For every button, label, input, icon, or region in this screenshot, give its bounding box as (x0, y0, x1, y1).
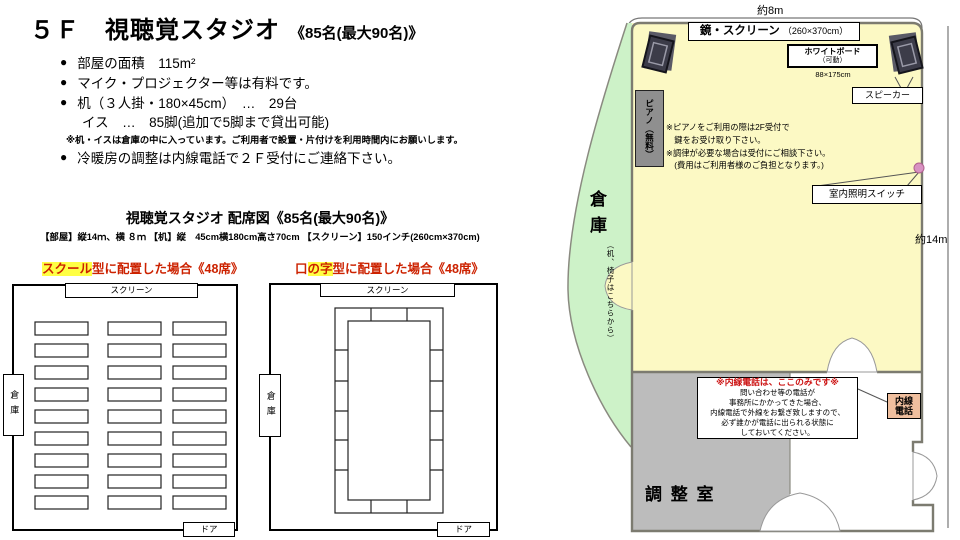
floorplan (560, 0, 960, 540)
desk (35, 388, 88, 401)
desk (35, 344, 88, 357)
whiteboard-label: ホワイトボード （可動） (787, 44, 878, 68)
square-storage-label: 倉庫 (259, 374, 281, 437)
square-layout-title-pre: 口 (295, 262, 308, 276)
bullet-room-area-text: 部屋の面積 115m² (77, 52, 195, 72)
light-switch-dot (914, 163, 924, 173)
desk (173, 454, 226, 467)
school-storage-label: 倉庫 (3, 374, 24, 436)
square-layout-title-highlight: の字 (308, 262, 333, 276)
whiteboard-size-label: 88×175cm (790, 70, 876, 79)
seating-specs: 【部屋】縦14ｍ、横 ８ｍ 【机】縦 45cm横180cm高さ70cm 【スクリ… (5, 229, 515, 243)
desk (173, 322, 226, 335)
school-door-label: ドア (183, 522, 235, 537)
desk (108, 496, 161, 509)
page-title-capacity: 《85名(最大90名)》 (290, 22, 423, 43)
bullet-equipment: マイク・プロジェクター等は有料です。 (60, 72, 318, 92)
whiteboard-name: ホワイトボード (805, 48, 861, 56)
desk (173, 344, 226, 357)
piano-notes: ※ピアノをご利用の際は2F受付で 鍵をお受け取り下さい。 ※調律が必要な場合は受… (666, 121, 830, 172)
control-room-label: 調 整 室 (645, 480, 715, 505)
seating-title: 視聴覚スタジオ 配席図《85名(最大90名)》 (60, 208, 460, 228)
desk (108, 322, 161, 335)
square-layout-diagram (258, 283, 502, 535)
whiteboard-sub: （可動） (819, 57, 847, 64)
storage-sub-label: （机、椅子はこちらから） (605, 241, 616, 343)
piano-note-line: ※調律が必要な場合は受付にご相談下さい。 (666, 147, 830, 160)
desk (173, 475, 226, 488)
square-screen-label: スクリーン (320, 283, 455, 297)
desk (35, 366, 88, 379)
table-ring-inner (348, 321, 430, 500)
school-layout-title-highlight: スクール (42, 262, 92, 276)
desk (108, 388, 161, 401)
bullet-equipment-text: マイク・プロジェクター等は有料です。 (77, 72, 318, 92)
square-door-label: ドア (437, 522, 490, 537)
desk (173, 410, 226, 423)
bullet-aircon-text: 冷暖房の調整は内線電話で２Ｆ受付にご連絡下さい。 (77, 147, 401, 167)
school-screen-label: スクリーン (65, 283, 198, 298)
page-title: ５Ｆ 視聴覚スタジオ (30, 10, 280, 45)
phone-note-line: しておいてください。 (740, 428, 814, 438)
mirror-screen-label: 鏡・スクリーン （260×370cm） (688, 22, 860, 41)
desk (173, 432, 226, 445)
desk (35, 432, 88, 445)
desk (108, 366, 161, 379)
facility-guide-page: ５Ｆ 視聴覚スタジオ 《85名(最大90名)》 部屋の面積 115m² マイク・… (0, 0, 960, 540)
desk (35, 496, 88, 509)
intercom-label: 内線 電話 (887, 393, 921, 419)
bullet-room-area: 部屋の面積 115m² (60, 52, 196, 72)
phone-note-title: ※内線電話は、ここのみです※ (716, 378, 839, 387)
bullet-desks: 机（３人掛・180×45cm） … 29台 (60, 92, 297, 112)
phone-note-line: 問い合わせ等の電話が (740, 388, 815, 398)
piano-label: ピアノ（無料） (635, 90, 664, 167)
desk (108, 344, 161, 357)
school-desks (35, 322, 226, 509)
intercom-label-line: 内線 (895, 396, 913, 406)
piano-note-line: (費用はご利用者様のご負担となります。) (666, 159, 830, 172)
bullet-aircon: 冷暖房の調整は内線電話で２Ｆ受付にご連絡下さい。 (60, 147, 401, 167)
phone-note-line: 事務所にかかってきた場合、 (729, 398, 826, 408)
mirror-screen-name: 鏡・スクリーン (700, 25, 780, 37)
light-switch-label: 室内照明スイッチ (812, 185, 922, 204)
bullet-chairs-text: イス … 85脚(追加で5脚まで貸出可能) (82, 111, 329, 131)
phone-note-line: 内線電話で外線をお繋ぎ致しますので、 (710, 408, 845, 418)
desk (173, 496, 226, 509)
desk (173, 388, 226, 401)
desk (35, 475, 88, 488)
phone-note-box: ※内線電話は、ここのみです※ 問い合わせ等の電話が 事務所にかかってきた場合、 … (697, 377, 858, 439)
intercom-label-line: 電話 (895, 406, 913, 416)
square-layout-title: 口の字型に配置した場合《48席》 (295, 258, 484, 277)
height-dimension-label: 約14m (915, 231, 947, 247)
mirror-screen-size: （260×370cm） (783, 27, 848, 36)
school-layout-title-rest: 型に配置した場合《48席》 (92, 262, 243, 276)
phone-pointer-line (858, 389, 887, 402)
storage-note-text: ※机・イスは倉庫の中に入っています。ご利用者で設置・片付けを利用時間内にお願いし… (66, 132, 463, 146)
desk (173, 366, 226, 379)
school-layout-diagram (0, 283, 252, 535)
piano-note-line: ※ピアノをご利用の際は2F受付で (666, 121, 830, 134)
square-tables (335, 308, 443, 513)
width-dimension-label: 約8m (757, 2, 783, 18)
desk (35, 454, 88, 467)
desk (35, 322, 88, 335)
desk (35, 410, 88, 423)
desk (108, 410, 161, 423)
bullet-desks-text: 机（３人掛・180×45cm） … 29台 (77, 92, 297, 112)
desk (108, 475, 161, 488)
desk (108, 454, 161, 467)
school-layout-title: スクール型に配置した場合《48席》 (42, 258, 243, 277)
piano-note-line: 鍵をお受け取り下さい。 (666, 134, 830, 147)
door-right-wall (913, 452, 937, 500)
desk (108, 432, 161, 445)
speaker-label: スピーカー (852, 87, 923, 104)
storage-label: 倉庫 (584, 190, 609, 242)
phone-note-line: 必ず誰かが電話に出られる状態に (721, 418, 834, 428)
title-row: ５Ｆ 視聴覚スタジオ 《85名(最大90名)》 (30, 10, 423, 45)
square-layout-title-rest: 型に配置した場合《48席》 (333, 262, 484, 276)
